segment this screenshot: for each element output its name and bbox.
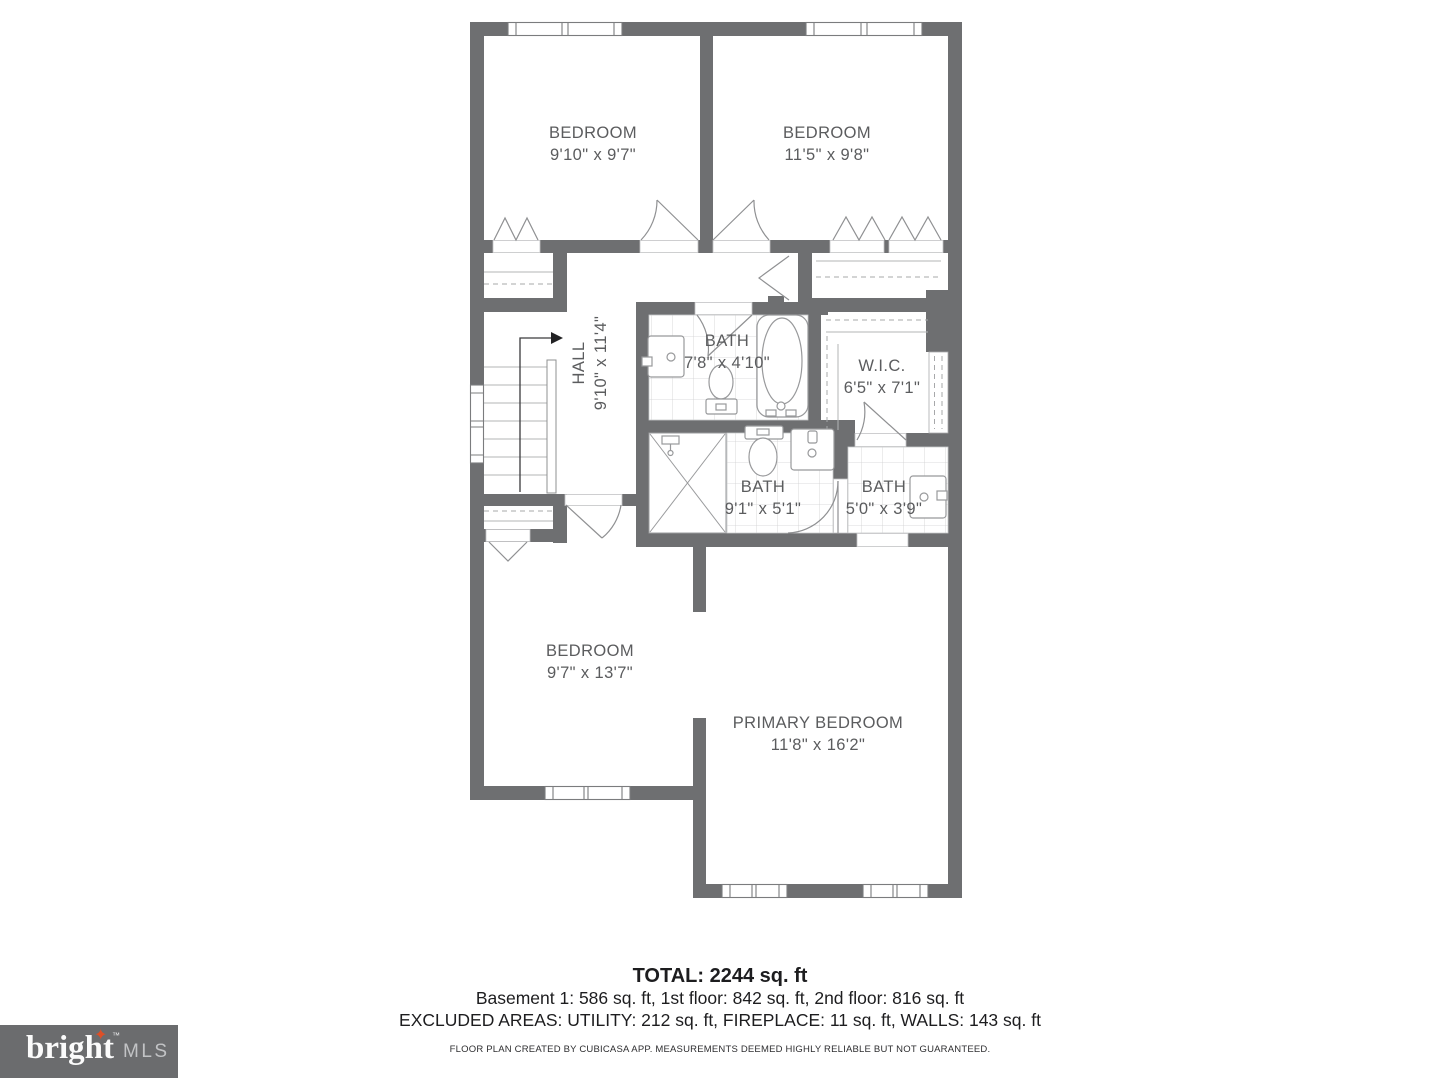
room-label-bedroom3: BEDROOM 9'7" x 13'7"	[490, 640, 690, 684]
room-name: BATH	[627, 330, 827, 352]
total-area-text: TOTAL: 2244 sq. ft	[0, 964, 1440, 988]
bifold-door-icon	[489, 542, 527, 561]
room-name: HALL	[568, 263, 590, 463]
room-label-bedroom1: BEDROOM 9'10" x 9'7"	[493, 122, 693, 166]
room-dims: 9'10" x 11'4"	[590, 263, 612, 463]
door-swing-icon	[713, 200, 769, 240]
room-label-hall: HALL 9'10" x 11'4"	[568, 263, 612, 463]
stairs-icon	[484, 332, 563, 493]
room-label-wic: W.I.C. 6'5" x 7'1"	[782, 355, 982, 399]
door-swing-icon	[641, 200, 698, 240]
window	[722, 885, 787, 898]
room-dims: 5'0" x 3'9"	[784, 498, 984, 520]
floor-plan-drawing	[0, 0, 1440, 1080]
logo-star-icon: ✦	[94, 1025, 107, 1045]
window	[471, 385, 484, 463]
room-dims: 11'8" x 16'2"	[718, 734, 918, 756]
floor-plan-page: BEDROOM 9'10" x 9'7" BEDROOM 11'5" x 9'8…	[0, 0, 1440, 1080]
area-summary: TOTAL: 2244 sq. ft Basement 1: 586 sq. f…	[0, 964, 1440, 1055]
sink-icon	[791, 429, 834, 470]
room-name: W.I.C.	[782, 355, 982, 377]
stair-handrail	[547, 360, 556, 493]
window	[508, 23, 622, 36]
disclaimer-text: FLOOR PLAN CREATED BY CUBICASA APP. MEAS…	[0, 1044, 1440, 1055]
room-label-bedroom2: BEDROOM 11'5" x 9'8"	[727, 122, 927, 166]
room-label-primary-bedroom: PRIMARY BEDROOM 11'8" x 16'2"	[718, 712, 918, 756]
room-dims: 6'5" x 7'1"	[782, 377, 982, 399]
room-dims: 11'5" x 9'8"	[727, 144, 927, 166]
room-name: BEDROOM	[493, 122, 693, 144]
brightmls-logo: bright ✦ ™ MLS	[0, 1025, 178, 1078]
excluded-areas-text: EXCLUDED AREAS: UTILITY: 212 sq. ft, FIR…	[0, 1010, 1440, 1032]
room-label-bath3: BATH 5'0" x 3'9"	[784, 476, 984, 520]
bifold-door-icon	[494, 218, 538, 240]
bifold-door-icon	[889, 217, 941, 240]
bifold-door-icon	[833, 217, 885, 240]
floor-areas-text: Basement 1: 586 sq. ft, 1st floor: 842 s…	[0, 988, 1440, 1010]
window	[806, 23, 922, 36]
room-dims: 9'7" x 13'7"	[490, 662, 690, 684]
room-name: BEDROOM	[490, 640, 690, 662]
room-name: BATH	[784, 476, 984, 498]
stair-treads	[484, 367, 553, 475]
stair-direction-arrow	[551, 332, 563, 344]
room-name: BEDROOM	[727, 122, 927, 144]
window	[545, 787, 630, 800]
door-ajar-icon	[759, 256, 789, 300]
room-dims: 9'10" x 9'7"	[493, 144, 693, 166]
door-swing-icon	[566, 505, 621, 538]
room-name: PRIMARY BEDROOM	[718, 712, 918, 734]
logo-trademark: ™	[112, 1031, 120, 1040]
stair-direction-line	[520, 338, 551, 492]
window	[863, 885, 928, 898]
logo-mls-text: MLS	[123, 1041, 170, 1063]
